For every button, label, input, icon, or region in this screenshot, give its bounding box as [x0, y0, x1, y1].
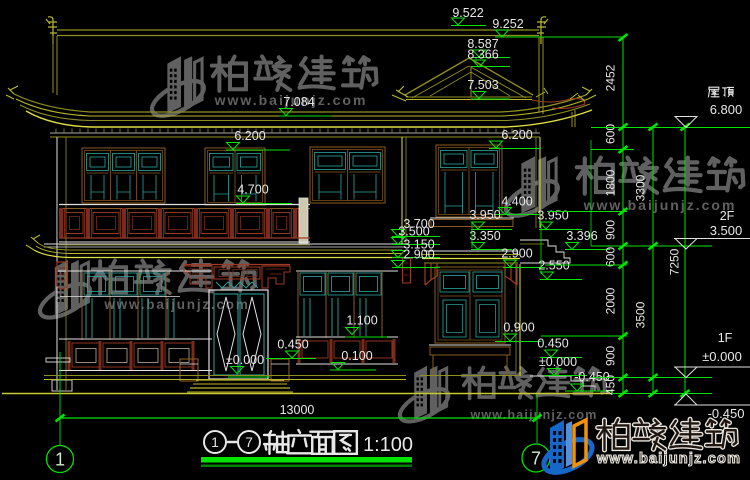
svg-text:6.800: 6.800: [710, 102, 743, 117]
svg-text:3.500: 3.500: [710, 223, 743, 238]
svg-text:3.396: 3.396: [566, 229, 597, 243]
svg-text:6.200: 6.200: [234, 129, 265, 143]
svg-text:2.900: 2.900: [403, 248, 434, 262]
svg-text:3300: 3300: [634, 174, 648, 201]
svg-text:1.100: 1.100: [346, 314, 377, 328]
svg-text:2452: 2452: [604, 64, 618, 91]
svg-text:0.450: 0.450: [537, 337, 568, 351]
svg-text:3.350: 3.350: [469, 229, 500, 243]
svg-text:±0.000: ±0.000: [226, 353, 264, 367]
svg-text:2000: 2000: [604, 287, 618, 314]
svg-text:6.200: 6.200: [501, 128, 532, 142]
svg-text:2F: 2F: [720, 209, 735, 223]
svg-text:www.baijunjz.com: www.baijunjz.com: [583, 197, 737, 213]
svg-text:0.450: 0.450: [277, 338, 308, 352]
svg-text:4.700: 4.700: [237, 183, 268, 197]
svg-text:8.366: 8.366: [467, 48, 498, 62]
svg-text:7: 7: [245, 434, 253, 450]
svg-text:±0.000: ±0.000: [539, 355, 577, 369]
svg-text:3500: 3500: [634, 301, 648, 328]
svg-text:2.550: 2.550: [538, 259, 569, 273]
svg-text:7: 7: [531, 449, 541, 469]
svg-text:600: 600: [604, 247, 618, 267]
svg-text:1800: 1800: [604, 169, 618, 196]
svg-text:7.084: 7.084: [283, 95, 314, 109]
svg-text:0.900: 0.900: [503, 321, 534, 335]
svg-text:4.400: 4.400: [501, 195, 532, 209]
svg-text:7.503: 7.503: [467, 78, 498, 92]
svg-text:2.900: 2.900: [501, 247, 532, 261]
svg-text:3.950: 3.950: [537, 209, 568, 223]
svg-text:±0.000: ±0.000: [702, 349, 742, 364]
svg-text:3.500: 3.500: [398, 225, 429, 239]
svg-text:1: 1: [211, 434, 219, 450]
svg-text:600: 600: [604, 124, 618, 144]
svg-text:900: 900: [604, 346, 618, 366]
svg-text:0.100: 0.100: [341, 349, 372, 363]
svg-text:13000: 13000: [280, 403, 315, 417]
svg-text:www.baijunjz.com: www.baijunjz.com: [596, 451, 741, 467]
svg-text:1: 1: [55, 450, 65, 470]
svg-text:900: 900: [604, 220, 618, 240]
svg-text:7250: 7250: [668, 248, 682, 275]
svg-text:1F: 1F: [718, 331, 733, 345]
svg-text:1:100: 1:100: [363, 434, 413, 456]
svg-text:9.252: 9.252: [492, 17, 523, 31]
svg-text:3.950: 3.950: [469, 208, 500, 222]
